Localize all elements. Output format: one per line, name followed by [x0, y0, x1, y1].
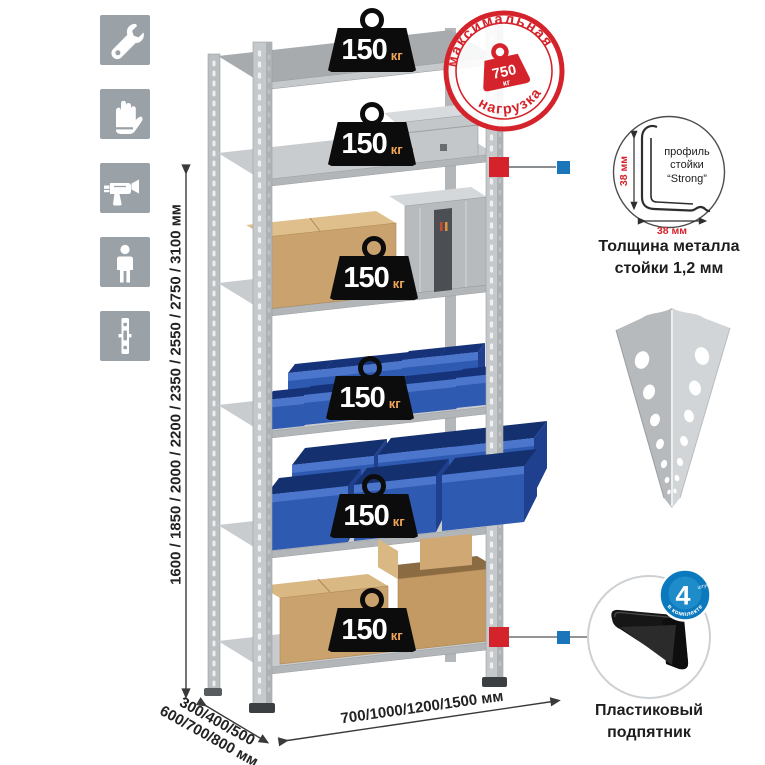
- shelf-load-badge: 150кг: [328, 122, 416, 166]
- product-infographic: 1600 / 1850 / 2000 / 2200 / 2350 / 2550 …: [0, 0, 765, 765]
- feature-tile-drill: [100, 163, 150, 213]
- wrench-icon: [100, 15, 150, 65]
- profile-dim-vertical: 38 мм: [618, 156, 630, 186]
- corner-post-image: [602, 302, 742, 524]
- profile-dim-horizontal: 38 мм: [657, 225, 687, 236]
- max-load-stamp: максимальная нагрузка 750 кг: [429, 0, 578, 146]
- profile-label-2: стойки: [670, 159, 704, 171]
- rack-post-icon: [100, 311, 150, 361]
- person-icon: [100, 237, 150, 287]
- count-badge-value: 4: [675, 581, 690, 611]
- callout-marker-red-bottom: [489, 627, 509, 647]
- callout-connectors: [489, 157, 591, 647]
- profile-detail-circle: 38 мм 38 мм профиль стойки “Strong”: [594, 114, 746, 236]
- shelf-load-badge: 150кг: [328, 608, 416, 652]
- profile-label-3: “Strong”: [667, 173, 707, 185]
- callout-marker-blue-bottom: [557, 631, 570, 644]
- profile-caption: Толщина металла стойки 1,2 мм: [578, 236, 760, 280]
- callout-marker-blue-top: [557, 161, 570, 174]
- shelf-load-badge: 150кг: [330, 256, 418, 300]
- profile-label-1: профиль: [664, 146, 710, 158]
- drill-icon: [100, 163, 150, 213]
- feature-tile-assembly: [100, 15, 150, 65]
- callout-marker-red-top: [489, 157, 509, 177]
- shelf-load-badge: 150кг: [326, 376, 414, 420]
- gloves-icon: [100, 89, 150, 139]
- feature-tile-person: [100, 237, 150, 287]
- foot-caption: Пластиковый подпятник: [570, 700, 728, 744]
- height-options-label: 1600 / 1850 / 2000 / 2200 / 2350 / 2550 …: [168, 125, 185, 665]
- shelf-load-badge: 150кг: [330, 494, 418, 538]
- storage-bin-overhang: [442, 449, 537, 531]
- feature-tile-gloves: [100, 89, 150, 139]
- count-badge: 4 штуки в комплекте: [656, 566, 714, 624]
- feature-tile-post: [100, 311, 150, 361]
- shelf-load-badge: 150кг: [328, 28, 416, 72]
